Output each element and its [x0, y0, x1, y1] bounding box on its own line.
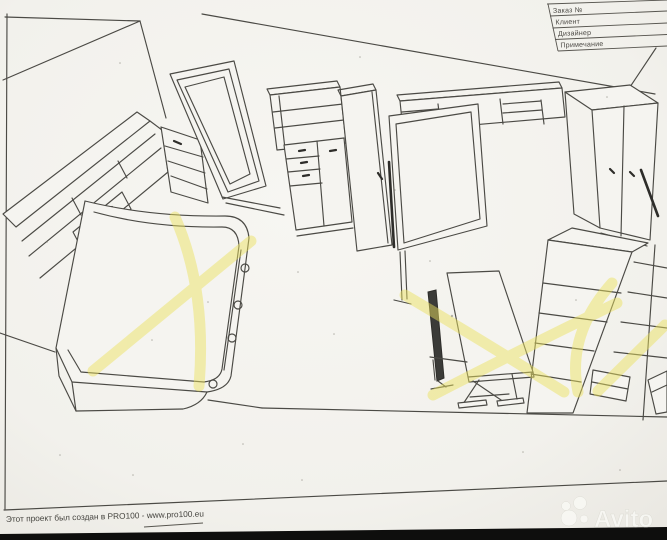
title-block-row-designer: Дизайнер — [558, 29, 592, 38]
title-block-row-note: Примечание — [560, 40, 603, 49]
avito-logo-dot — [561, 510, 577, 526]
sofa-bed — [56, 201, 249, 411]
avito-logo-dot — [562, 502, 571, 511]
pro100-url: www.pro100.eu — [146, 508, 205, 520]
title-block-row-client: Клиент — [555, 18, 580, 27]
drawer-cabinet — [284, 138, 353, 236]
drawer-handle — [301, 162, 307, 163]
avito-logo-dot — [580, 515, 588, 523]
avito-wordmark: Avito — [594, 506, 653, 533]
drawer-handle — [303, 175, 309, 176]
title-block-row-order: Заказ № — [553, 6, 583, 15]
cabinet-door-handle — [330, 150, 336, 151]
pro100-room-drawing: Заказ № Клиент Дизайнер Примечание Этот … — [0, 0, 667, 540]
avito-logo-dot — [574, 497, 587, 510]
scanned-project-page: Заказ № Клиент Дизайнер Примечание Этот … — [0, 0, 667, 540]
drawer-handle — [299, 150, 305, 151]
